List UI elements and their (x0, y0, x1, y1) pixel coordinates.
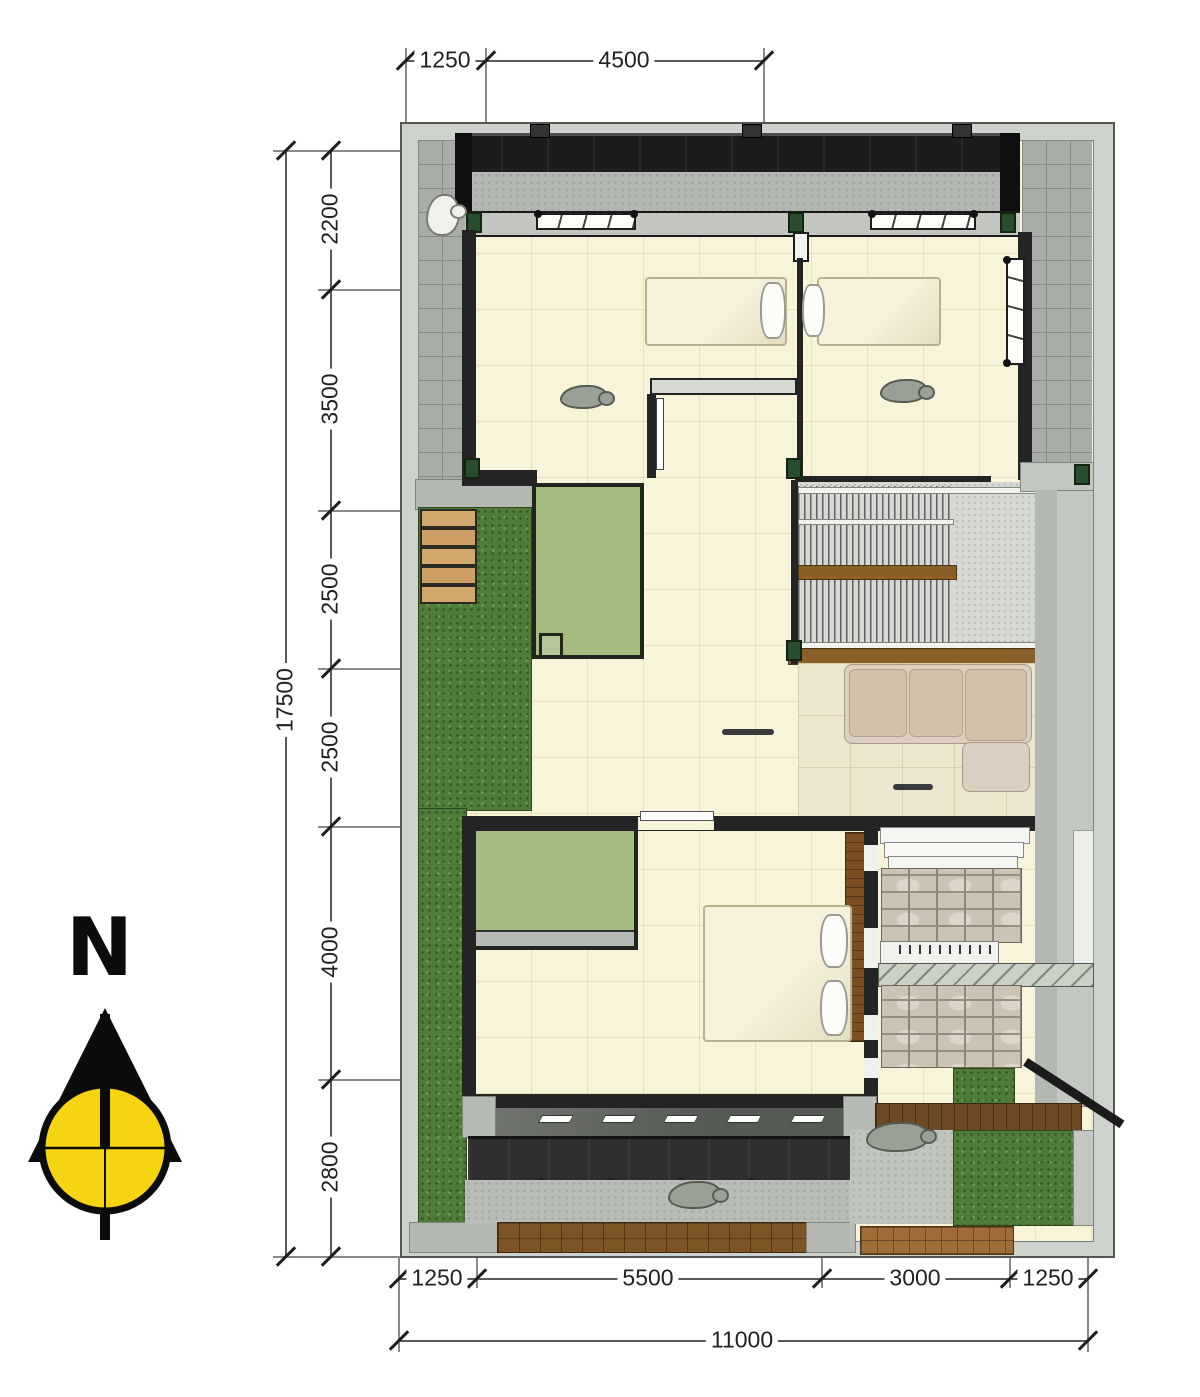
garden-steps (420, 509, 477, 604)
dim-label-left-2: 3500 (317, 368, 344, 429)
bedroom-partition-wall (797, 258, 803, 480)
stair-handrail (798, 487, 1037, 494)
column-post (786, 640, 802, 661)
bedroom2-window (870, 213, 976, 230)
window-mullion (726, 1115, 762, 1123)
dim-label-top-2: 4500 (593, 46, 654, 73)
bed-pillow (760, 282, 786, 339)
glass-roof-band (878, 963, 1094, 987)
green-room-notch (539, 633, 563, 655)
master-south-wall (462, 1094, 875, 1109)
window-mullion (601, 1115, 637, 1123)
sofa (844, 664, 1032, 744)
wall-window-seg (864, 928, 878, 968)
roof-cross-beam (742, 124, 762, 138)
hall-glass-wall (791, 480, 798, 664)
south-walkway-concrete (465, 1180, 865, 1224)
wall-window-seg (864, 845, 878, 871)
step-tread (422, 511, 475, 526)
dim-ext (273, 1256, 400, 1258)
column-post (464, 458, 480, 479)
column-post (1000, 212, 1016, 233)
dim-ext (1009, 1258, 1011, 1288)
sill-end-block (462, 1096, 496, 1138)
dog-figure (880, 379, 928, 403)
terrace-grass-patch (953, 1068, 1015, 1106)
column-post (788, 212, 804, 233)
person-figure (426, 194, 460, 236)
window-mullion (538, 1115, 574, 1123)
door-sill (640, 811, 714, 821)
sofa-cushion (965, 669, 1027, 741)
west-wall-south (462, 826, 476, 1110)
roof-cross-beam (952, 124, 972, 138)
bed-single-right (817, 277, 941, 346)
column-post (1074, 464, 1090, 485)
dim-label-bottom-total: 11000 (706, 1326, 778, 1353)
front-porch-balcony (472, 172, 1000, 212)
terrace-grass-main (953, 1130, 1075, 1226)
roof-cross-beam (530, 124, 550, 138)
dog-figure (560, 385, 608, 409)
wall-window-seg (864, 1058, 878, 1078)
closet-wall-beam (650, 378, 797, 395)
stair-flight-lower (798, 578, 952, 646)
door-jamb-wall (647, 394, 656, 478)
green-room-upper (532, 483, 644, 659)
floor-object (722, 729, 774, 735)
floor-object (893, 784, 933, 790)
dim-ext (821, 1258, 823, 1288)
dim-label-bottom-2: 5500 (617, 1264, 678, 1291)
dim-label-bottom-1: 1250 (406, 1264, 467, 1291)
bedroom2-east-window (1006, 258, 1025, 365)
bedroom1-window (536, 213, 636, 230)
window-mullion (790, 1115, 826, 1123)
floor-plan-canvas: 1250 4500 2200 3500 2500 2500 4000 2800 … (0, 0, 1200, 1397)
dim-label-bottom-3: 3000 (884, 1264, 945, 1291)
dim-label-top-1: 1250 (414, 46, 475, 73)
door-leaf (656, 398, 664, 470)
green-room-edge (470, 930, 634, 946)
dim-label-left-3: 2500 (317, 558, 344, 619)
dog-figure (866, 1122, 930, 1152)
window-mullion (663, 1115, 699, 1123)
dim-label-left-4: 2500 (317, 716, 344, 777)
stair-landing-wood-edge (798, 565, 957, 580)
compass-north-label: N (66, 908, 133, 988)
sofa-cushion (849, 669, 907, 737)
sofa-chaise (962, 742, 1030, 792)
roof-end-cap-east (1000, 133, 1020, 213)
dim-line-left (330, 150, 332, 1256)
compass-north-icon (20, 1000, 190, 1250)
step-tread (422, 549, 475, 564)
side-yard-tiles-east (1022, 140, 1092, 480)
southeast-tile-walkway (860, 1226, 1014, 1255)
east-wall-shade (1035, 490, 1057, 1105)
bed-pillow (802, 284, 825, 337)
west-wall-north (462, 230, 476, 485)
garden-curb-southwest (409, 1222, 500, 1253)
column-post (786, 458, 802, 479)
dim-ext (273, 150, 400, 152)
master-window-sill-strip (462, 1108, 875, 1138)
bed-pillow (820, 980, 848, 1036)
green-room-lower (466, 826, 638, 950)
step-tread (422, 568, 475, 583)
dim-label-left-5: 4000 (317, 921, 344, 982)
south-roof-canopy (468, 1136, 865, 1183)
dog-figure (668, 1181, 722, 1209)
sofa-cushion (909, 669, 963, 737)
wall-window-seg (864, 1015, 878, 1040)
terrace-concrete-east (1073, 1130, 1094, 1226)
shower-tray (880, 941, 999, 964)
bed-pillow (820, 914, 848, 968)
walkway-curb (806, 1222, 856, 1253)
brick-wall-upper (881, 868, 1022, 943)
east-wall-white-column (1073, 830, 1094, 977)
dim-label-left-6: 2800 (317, 1136, 344, 1197)
roof-end-cap-west (455, 133, 472, 213)
step-tread (422, 587, 475, 602)
dim-line-bottom (398, 1278, 1087, 1280)
west-garden-grass-lower (418, 808, 467, 1224)
brick-wall-lower (881, 985, 1022, 1068)
step-tread (422, 530, 475, 545)
north-roof-canopy (455, 133, 1020, 176)
dim-label-left-total: 17500 (272, 663, 299, 737)
dim-label-left-1: 2200 (317, 188, 344, 249)
stair-handrail (798, 519, 954, 525)
stair-flight-upper (798, 486, 952, 570)
south-timber-walkway (497, 1222, 809, 1253)
dim-ext (476, 1258, 478, 1288)
dim-label-bottom-4: 1250 (1017, 1264, 1078, 1291)
drain-grate (899, 945, 991, 954)
